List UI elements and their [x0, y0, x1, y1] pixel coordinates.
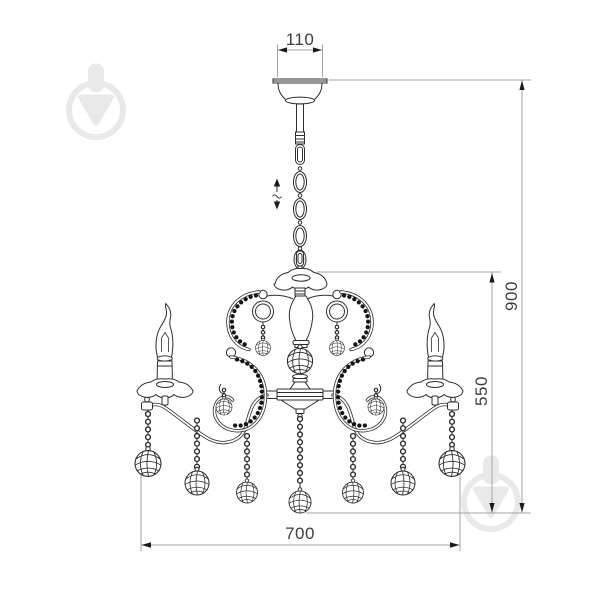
dim-canopy-width: 110 [278, 30, 323, 77]
central-column [266, 251, 334, 418]
body-height-label: 550 [472, 376, 491, 406]
overall-height-label: 900 [502, 281, 521, 311]
canopy-width-label: 110 [286, 30, 315, 49]
watermark-top-left [69, 66, 123, 137]
center-crystal-ball [289, 487, 311, 513]
center-bead-strand [289, 418, 311, 513]
overall-width-label: 700 [285, 524, 315, 543]
suspension-chain [294, 145, 307, 270]
ceiling-canopy [273, 79, 327, 104]
circle-down-arrow-logo-icon [69, 66, 123, 137]
technical-drawing-page: 110 900 550 700 [0, 0, 600, 600]
watermark-bottom-right [464, 458, 518, 529]
chandelier-dimension-drawing: 110 900 550 700 [0, 0, 600, 600]
central-crystal-ball [287, 344, 312, 374]
suspension-rod [296, 104, 305, 144]
height-adjustable-icon [273, 179, 282, 210]
circle-down-arrow-logo-icon [464, 458, 518, 529]
